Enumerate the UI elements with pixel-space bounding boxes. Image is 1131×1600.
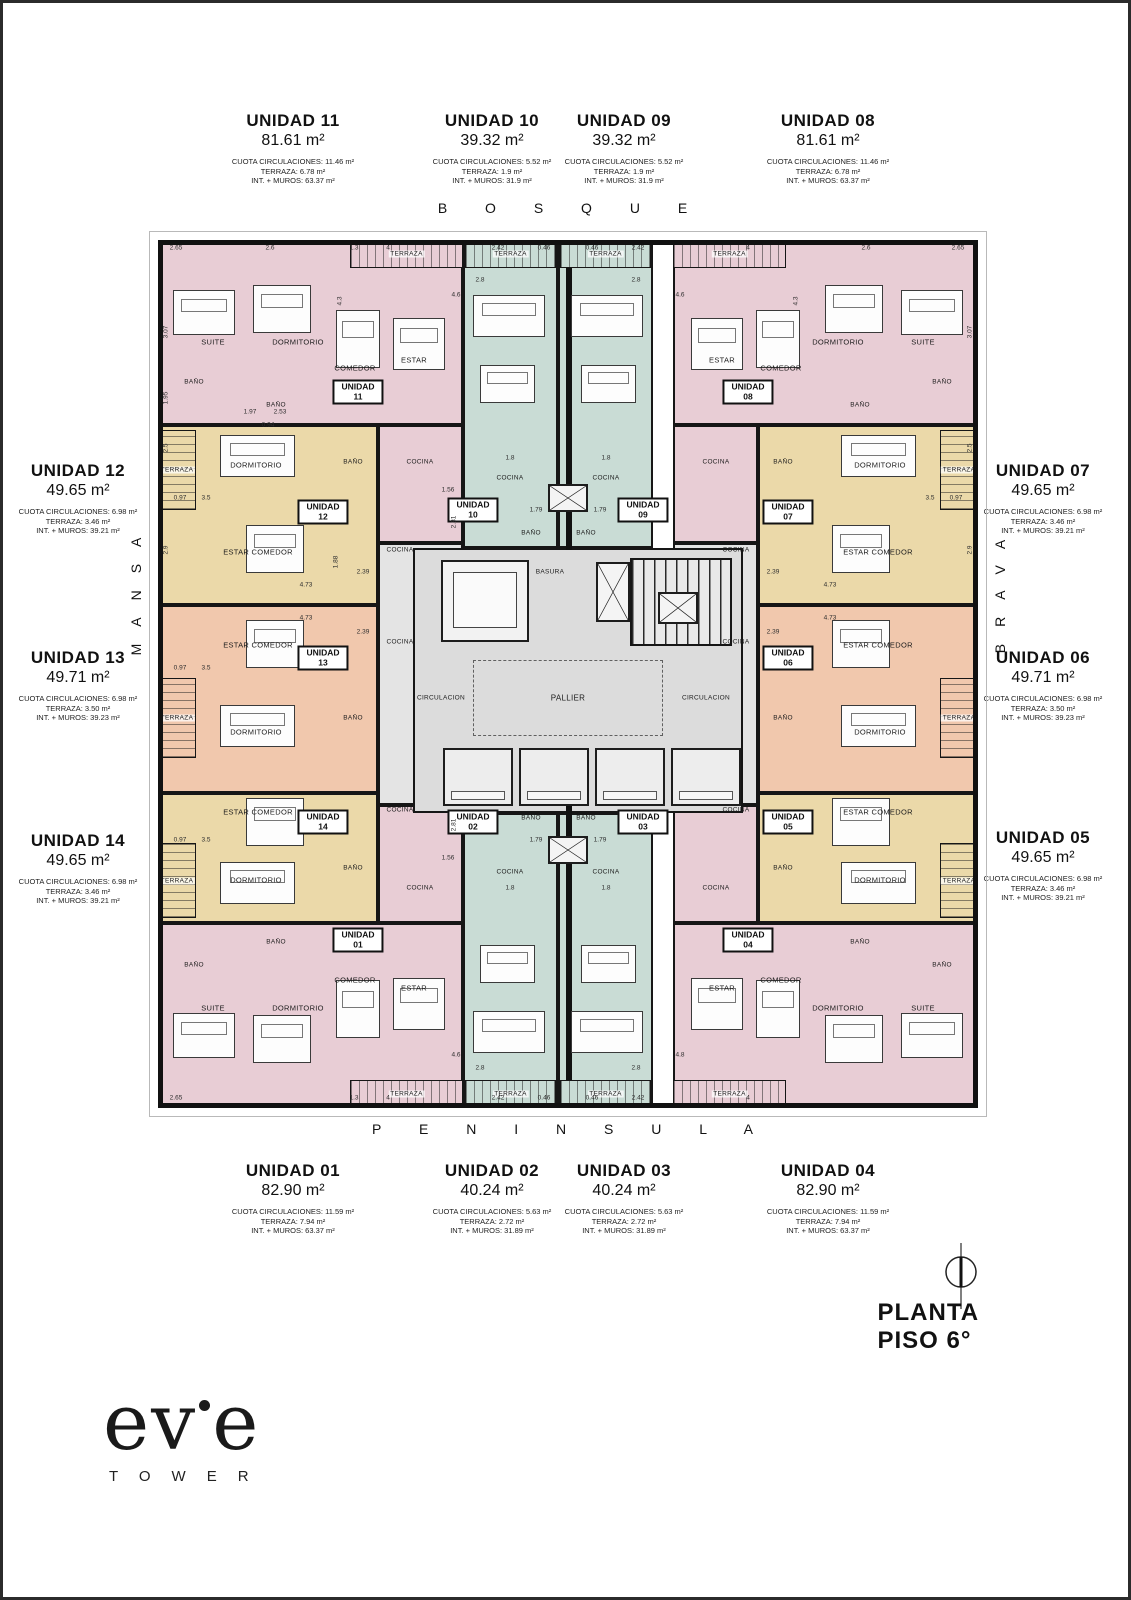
dimension-label: 4.6 <box>675 292 684 299</box>
dimension-label: 4.3 <box>793 296 800 305</box>
shaft-x-icon <box>548 836 588 864</box>
room-label: DORMITORIO <box>272 338 324 347</box>
terraza-label: TERRAZA <box>711 251 747 258</box>
dimension-label: 2.8 <box>631 277 640 284</box>
room-label: DORMITORIO <box>812 338 864 347</box>
dimension-label: 3.5 <box>201 837 210 844</box>
unit-info-08: UNIDAD 08 81.61 m² CUOTA CIRCULACIONES: … <box>713 111 943 186</box>
room-label: SUITE <box>911 338 935 347</box>
furniture <box>571 1011 643 1053</box>
furniture <box>901 1013 963 1058</box>
dimension-label: 1.79 <box>530 837 543 844</box>
unit-tag: UNIDAD09 <box>617 498 668 523</box>
unit-info-11: UNIDAD 11 81.61 m² CUOTA CIRCULACIONES: … <box>178 111 408 186</box>
room-label: COCINA <box>702 885 729 892</box>
room-label: ESTAR COMEDOR <box>843 641 913 650</box>
room-label: ESTAR COMEDOR <box>843 808 913 817</box>
unit-info-01: UNIDAD 01 82.90 m² CUOTA CIRCULACIONES: … <box>178 1161 408 1236</box>
terraza-label: TERRAZA <box>388 1091 424 1098</box>
dimension-label: 2.8 <box>631 1065 640 1072</box>
unit-info-14: UNIDAD 14 49.65 m² CUOTA CIRCULACIONES: … <box>0 831 158 906</box>
dimension-label: 2.39 <box>767 569 780 576</box>
floor-plan-sheet: UNIDAD 11 81.61 m² CUOTA CIRCULACIONES: … <box>0 0 1131 1600</box>
furniture <box>825 1015 883 1063</box>
room-label: BAÑO <box>932 962 952 969</box>
dimension-label: 4.73 <box>824 582 837 589</box>
room-label: COCINA <box>722 807 749 814</box>
unit-tag: UNIDAD05 <box>762 810 813 835</box>
terraza-label: TERRAZA <box>711 1091 747 1098</box>
dimension-label: 2.39 <box>357 569 370 576</box>
dimension-label: 2.81 <box>451 516 458 529</box>
terraza: TERRAZA <box>673 240 786 268</box>
furniture <box>901 290 963 335</box>
dimension-label: 2.9 <box>163 545 170 554</box>
dimension-label: 1.8 <box>505 455 514 462</box>
terraza: TERRAZA <box>673 1080 786 1108</box>
furniture <box>173 290 235 335</box>
room-label: COCINA <box>406 459 433 466</box>
unit-tag: UNIDAD06 <box>762 646 813 671</box>
dimension-label: 2.39 <box>767 629 780 636</box>
dimension-label: 0.46 <box>586 1095 599 1102</box>
room-label: BAÑO <box>521 815 541 822</box>
room-label: BAÑO <box>773 865 793 872</box>
room-label: ESTAR <box>401 356 427 365</box>
dimension-label: 4 <box>746 1095 750 1102</box>
unit-name: UNIDAD 11 <box>178 111 408 131</box>
dimension-label: 1.79 <box>594 837 607 844</box>
elevator <box>671 748 741 806</box>
logo-subtitle: TOWER <box>103 1468 270 1485</box>
unit-tag: UNIDAD08 <box>722 380 773 405</box>
dimension-label: 0.94 <box>262 422 275 429</box>
dimension-label: 2.53 <box>274 409 287 416</box>
terraza-label: TERRAZA <box>388 251 424 258</box>
unit-tag: UNIDAD01 <box>332 928 383 953</box>
furniture <box>246 798 304 846</box>
terraza: TERRAZA <box>158 678 196 758</box>
elevator-shaft <box>441 560 529 642</box>
street-mansa: MANSA <box>128 521 144 656</box>
terraza-label: TERRAZA <box>941 877 977 884</box>
dimension-label: 2.5 <box>967 443 974 452</box>
dimension-label: 1.8 <box>505 885 514 892</box>
room-label: ESTAR <box>401 984 427 993</box>
terraza: TERRAZA <box>350 240 463 268</box>
dimension-label: 2.42 <box>492 1095 505 1102</box>
terraza: TERRAZA <box>940 843 978 918</box>
dimension-label: 4 <box>386 245 390 252</box>
furniture <box>220 705 295 747</box>
room-label: BAÑO <box>773 459 793 466</box>
unit-info-09: UNIDAD 09 39.32 m² CUOTA CIRCULACIONES: … <box>509 111 739 186</box>
dimension-label: 2.6 <box>265 245 274 252</box>
dimension-label: 2.5 <box>163 443 170 452</box>
unit-info-06: UNIDAD 06 49.71 m² CUOTA CIRCULACIONES: … <box>955 648 1131 723</box>
elevator <box>595 748 665 806</box>
dimension-label: 4.73 <box>824 615 837 622</box>
street-peninsula: P E N I N S U L A <box>372 1121 770 1137</box>
terraza-label: TERRAZA <box>492 251 528 258</box>
room-label: COCINA <box>386 807 413 814</box>
room-label: BAÑO <box>850 402 870 409</box>
room-label: BAÑO <box>184 962 204 969</box>
dimension-label: 2.6 <box>861 245 870 252</box>
unit-area: 81.61 m² <box>178 132 408 150</box>
furniture <box>336 310 380 368</box>
elevator <box>443 748 513 806</box>
room-label: ESTAR <box>709 356 735 365</box>
eve-tower-logo: eve TOWER <box>103 1388 270 1485</box>
room-label: ESTAR COMEDOR <box>223 641 293 650</box>
furniture <box>220 435 295 477</box>
terraza: TERRAZA <box>940 678 978 758</box>
room-label: DORMITORIO <box>854 728 906 737</box>
furniture <box>756 310 800 368</box>
room-label-basura: BASURA <box>536 569 565 576</box>
room-label: BAÑO <box>773 715 793 722</box>
dimension-label: 0.46 <box>538 245 551 252</box>
room-label: DORMITORIO <box>854 461 906 470</box>
room-label: COCINA <box>702 459 729 466</box>
dimension-label: 3.07 <box>163 326 170 339</box>
dimension-label: 0.46 <box>586 245 599 252</box>
dimension-label: 0.97 <box>174 665 187 672</box>
terraza-label: TERRAZA <box>941 467 977 474</box>
room-label: BAÑO <box>343 715 363 722</box>
dimension-label: 1.56 <box>442 487 455 494</box>
room-label-pallier: PALLIER <box>551 694 585 703</box>
dimension-label: 2.65 <box>952 245 965 252</box>
room-label: COMEDOR <box>760 976 801 985</box>
furniture <box>756 980 800 1038</box>
room-label: ESTAR COMEDOR <box>223 808 293 817</box>
street-bosque: B O S Q U E <box>438 200 704 216</box>
room-label: DORMITORIO <box>230 876 282 885</box>
dimension-label: 4 <box>386 1095 390 1102</box>
dimension-label: 2.42 <box>632 245 645 252</box>
terraza-label: TERRAZA <box>941 715 977 722</box>
furniture <box>253 1015 311 1063</box>
room-label: BAÑO <box>266 939 286 946</box>
dimension-label: 1.95 <box>163 392 170 405</box>
dimension-label: 0.97 <box>950 495 963 502</box>
terraza: TERRAZA <box>158 843 196 918</box>
room-label: BAÑO <box>266 402 286 409</box>
furniture <box>571 295 643 337</box>
dimension-label: 2.8 <box>475 277 484 284</box>
furniture <box>841 705 916 747</box>
unit-tag: UNIDAD11 <box>332 380 383 405</box>
room-label: BAÑO <box>932 379 952 386</box>
unit-info-04: UNIDAD 04 82.90 m² CUOTA CIRCULACIONES: … <box>713 1161 943 1236</box>
room-label: BAÑO <box>576 530 596 537</box>
room-label: BAÑO <box>343 459 363 466</box>
room-label: DORMITORIO <box>230 728 282 737</box>
dimension-label: 0.97 <box>174 495 187 502</box>
room-label: COCINA <box>592 869 619 876</box>
dimension-label: 0.97 <box>174 837 187 844</box>
room-label: COCINA <box>386 639 413 646</box>
furniture <box>336 980 380 1038</box>
furniture <box>841 435 916 477</box>
dimension-label: 1.56 <box>442 855 455 862</box>
dimension-label: 1.79 <box>594 507 607 514</box>
terraza-label: TERRAZA <box>587 251 623 258</box>
shaft-x-icon <box>658 592 698 624</box>
dimension-label: 1.3 <box>349 245 358 252</box>
room-label: COMEDOR <box>334 364 375 373</box>
room-label: BAÑO <box>184 379 204 386</box>
furniture <box>581 945 636 983</box>
terraza-label: TERRAZA <box>159 715 195 722</box>
dimension-label: 1.88 <box>333 556 340 569</box>
room-label: SUITE <box>201 338 225 347</box>
room-label: COCINA <box>496 869 523 876</box>
dimension-label: 2.8 <box>475 1065 484 1072</box>
unit-tag: UNIDAD03 <box>617 810 668 835</box>
dimension-label: 4.6 <box>451 292 460 299</box>
furniture <box>825 285 883 333</box>
logo-dot-icon <box>199 1400 210 1411</box>
room-label: COMEDOR <box>334 976 375 985</box>
unit-tag: UNIDAD13 <box>297 646 348 671</box>
furniture <box>832 798 890 846</box>
room <box>673 805 758 923</box>
room-label: BAÑO <box>521 530 541 537</box>
room-label: DORMITORIO <box>272 1004 324 1013</box>
room-label: BAÑO <box>343 865 363 872</box>
room-label: DORMITORIO <box>812 1004 864 1013</box>
elevator <box>519 748 589 806</box>
dimension-label: 3.5 <box>201 495 210 502</box>
furniture <box>173 1013 235 1058</box>
room-label: ESTAR <box>709 984 735 993</box>
dimension-label: 2.42 <box>632 1095 645 1102</box>
dimension-label: 2.39 <box>357 629 370 636</box>
room-label: COCINA <box>722 547 749 554</box>
room-label: COCINA <box>386 547 413 554</box>
floor-plan-drawing: TERRAZATERRAZATERRAZATERRAZATERRAZATERRA… <box>158 240 978 1108</box>
dimension-label: 4.73 <box>300 615 313 622</box>
street-brava: BRAVA <box>992 523 1008 653</box>
room-label: SUITE <box>201 1004 225 1013</box>
dimension-label: 4.6 <box>451 1052 460 1059</box>
furniture <box>581 365 636 403</box>
dimension-label: 3.5 <box>201 665 210 672</box>
shaft-x-icon <box>596 562 630 622</box>
unit-tag: UNIDAD12 <box>297 500 348 525</box>
dimension-label: 1.97 <box>244 409 257 416</box>
unit-info-13: UNIDAD 13 49.71 m² CUOTA CIRCULACIONES: … <box>0 648 158 723</box>
room-label: DORMITORIO <box>854 876 906 885</box>
terraza-label: TERRAZA <box>159 467 195 474</box>
dimension-label: 1.8 <box>601 885 610 892</box>
dimension-label: 2.42 <box>492 245 505 252</box>
room-label: BAÑO <box>576 815 596 822</box>
room-label: COCINA <box>496 475 523 482</box>
unit-tag: UNIDAD04 <box>722 928 773 953</box>
dimension-label: 2.81 <box>451 819 458 832</box>
room-label: BAÑO <box>850 939 870 946</box>
dimension-label: 3.07 <box>967 326 974 339</box>
room-label: ESTAR COMEDOR <box>223 548 293 557</box>
shaft-x-icon <box>548 484 588 512</box>
dimension-label: 2.9 <box>967 545 974 554</box>
room-label: COCINA <box>592 475 619 482</box>
terraza: TERRAZA <box>350 1080 463 1108</box>
dimension-label: 3.5 <box>925 495 934 502</box>
furniture <box>480 365 535 403</box>
dimension-label: 0.46 <box>538 1095 551 1102</box>
unit-info-03: UNIDAD 03 40.24 m² CUOTA CIRCULACIONES: … <box>509 1161 739 1236</box>
dimension-label: 4.3 <box>337 296 344 305</box>
furniture <box>480 945 535 983</box>
room-label-circulacion: CIRCULACION <box>682 695 730 702</box>
sheet-title: PLANTA PISO 6° <box>878 1299 1045 1355</box>
dimension-label: 4 <box>746 245 750 252</box>
logo-word: eve <box>103 1388 270 1458</box>
furniture <box>253 285 311 333</box>
room-label: COCINA <box>722 639 749 646</box>
dimension-label: 4.73 <box>300 582 313 589</box>
unit-info-05: UNIDAD 05 49.65 m² CUOTA CIRCULACIONES: … <box>955 828 1131 903</box>
dimension-label: 1.8 <box>601 455 610 462</box>
room-label: DORMITORIO <box>230 461 282 470</box>
dimension-label: 2.65 <box>170 1095 183 1102</box>
furniture <box>473 1011 545 1053</box>
dimension-label: 1.79 <box>530 507 543 514</box>
room-label: COMEDOR <box>760 364 801 373</box>
dimension-label: 2.65 <box>170 245 183 252</box>
unit-info-07: UNIDAD 07 49.65 m² CUOTA CIRCULACIONES: … <box>955 461 1131 536</box>
room-label-circulacion: CIRCULACION <box>417 695 465 702</box>
room <box>673 425 758 543</box>
terraza-label: TERRAZA <box>159 877 195 884</box>
dimension-label: 1.3 <box>349 1095 358 1102</box>
room-label: ESTAR COMEDOR <box>843 548 913 557</box>
unit-tag: UNIDAD14 <box>297 810 348 835</box>
room-label: COCINA <box>406 885 433 892</box>
furniture <box>473 295 545 337</box>
unit-tag: UNIDAD07 <box>762 500 813 525</box>
dimension-label: 4.8 <box>675 1052 684 1059</box>
room-label: SUITE <box>911 1004 935 1013</box>
